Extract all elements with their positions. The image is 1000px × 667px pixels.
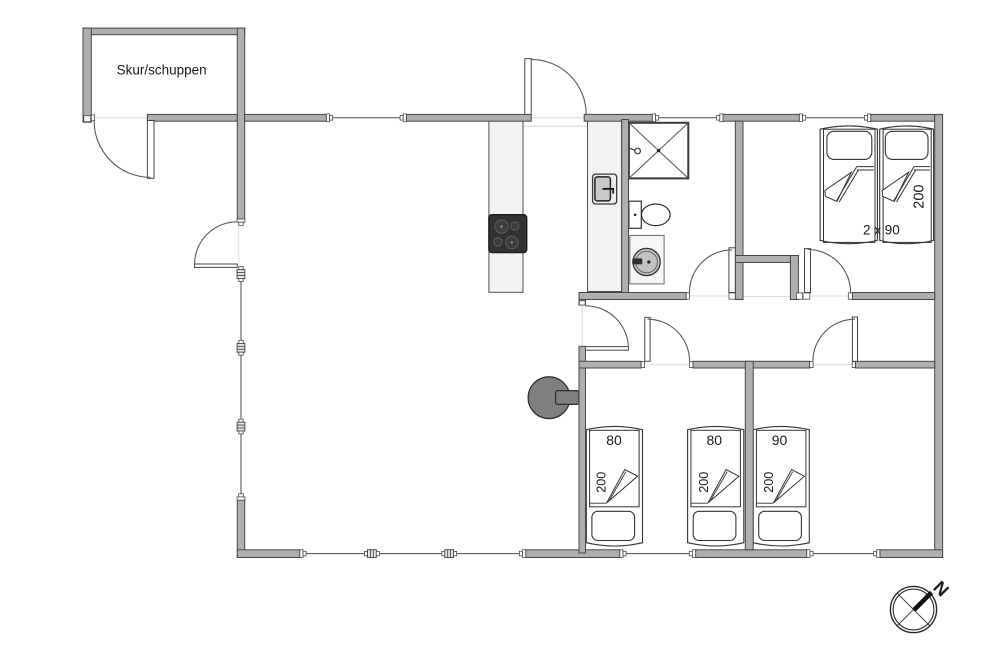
svg-text:200: 200 [594, 472, 608, 493]
svg-text:2 x 90: 2 x 90 [863, 223, 900, 238]
svg-text:200: 200 [697, 472, 711, 493]
svg-text:80: 80 [606, 432, 622, 448]
svg-text:Skur/schuppen: Skur/schuppen [117, 62, 207, 77]
svg-text:80: 80 [707, 432, 723, 448]
svg-text:200: 200 [762, 472, 776, 493]
svg-text:200: 200 [911, 184, 927, 208]
svg-text:90: 90 [772, 432, 788, 448]
